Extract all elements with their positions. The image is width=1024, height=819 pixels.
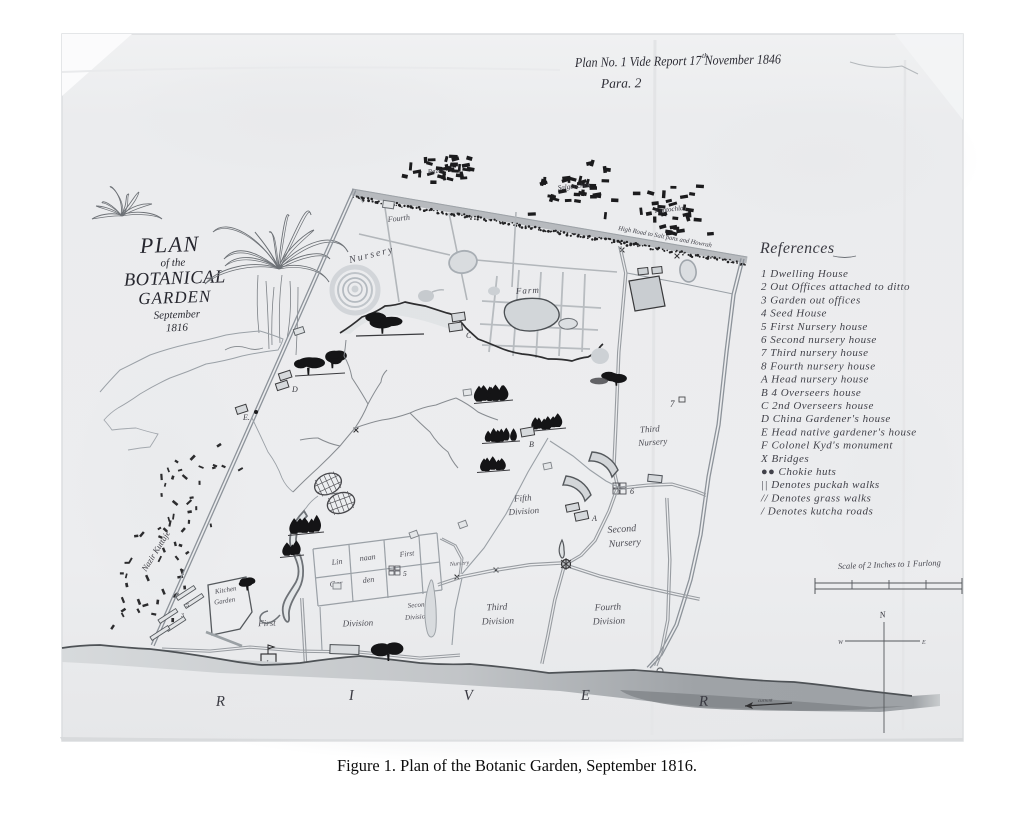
svg-text:A Head nursery house: A Head nursery house bbox=[760, 374, 869, 386]
svg-text:5: 5 bbox=[186, 603, 189, 609]
svg-text:Third: Third bbox=[640, 423, 661, 434]
svg-text:3: 3 bbox=[180, 613, 184, 619]
svg-text:Division: Division bbox=[481, 616, 515, 627]
svg-text:4 Seed House: 4 Seed House bbox=[761, 308, 827, 320]
svg-text:8 Fourth nursery house: 8 Fourth nursery house bbox=[761, 360, 876, 372]
svg-text:Farm: Farm bbox=[515, 285, 540, 296]
svg-text:2 Out Offices attached to dit: 2 Out Offices attached to ditto bbox=[761, 281, 910, 293]
svg-text:/ Denotes kutcha roads: / Denotes kutcha roads bbox=[760, 506, 873, 518]
svg-text:PLAN: PLAN bbox=[138, 231, 200, 258]
svg-text:den: den bbox=[362, 575, 375, 585]
svg-text:C 2nd Overseers house: C 2nd Overseers house bbox=[761, 400, 874, 412]
svg-text:E: E bbox=[921, 640, 926, 646]
svg-text:Fourth: Fourth bbox=[594, 603, 622, 614]
svg-text:●● Chokie huts: ●● Chokie huts bbox=[761, 466, 836, 478]
svg-text:September: September bbox=[153, 308, 201, 322]
svg-text:1816: 1816 bbox=[166, 322, 189, 335]
svg-text:Fifth: Fifth bbox=[513, 492, 533, 503]
svg-text:B 4 Overseers house: B 4 Overseers house bbox=[761, 387, 861, 399]
svg-text:Figure 1. Plan of the Botanic: Figure 1. Plan of the Botanic Garden, Se… bbox=[337, 756, 697, 775]
svg-text:E.: E. bbox=[242, 413, 250, 422]
svg-text:R: R bbox=[698, 694, 709, 710]
svg-text:3 Garden out offices: 3 Garden out offices bbox=[760, 294, 861, 306]
svg-text:X Bridges: X Bridges bbox=[760, 453, 809, 465]
svg-text:Third: Third bbox=[486, 603, 507, 614]
svg-text:C: C bbox=[466, 331, 472, 340]
svg-text:References: References bbox=[759, 240, 835, 257]
svg-text:Second: Second bbox=[607, 523, 638, 536]
svg-text:current: current bbox=[758, 698, 773, 704]
svg-text:7: 7 bbox=[670, 399, 675, 409]
svg-text:Division: Division bbox=[592, 616, 626, 627]
svg-text:R: R bbox=[215, 694, 226, 710]
svg-text:Nursery: Nursery bbox=[607, 537, 641, 550]
svg-text:of the: of the bbox=[160, 257, 185, 270]
svg-text:Nursery: Nursery bbox=[637, 436, 668, 448]
svg-text:5: 5 bbox=[403, 569, 407, 578]
svg-text:|| Denotes puckah walks: || Denotes puckah walks bbox=[761, 479, 880, 491]
svg-text:E Head native gardener's hous: E Head native gardener's house bbox=[760, 426, 917, 438]
svg-text:F Colonel Kyd's monument: F Colonel Kyd's monument bbox=[760, 440, 893, 452]
svg-text:E: E bbox=[580, 688, 591, 704]
svg-text:GARDEN: GARDEN bbox=[138, 287, 212, 309]
svg-text:1 Dwelling House: 1 Dwelling House bbox=[761, 268, 848, 280]
svg-text:Lin: Lin bbox=[330, 557, 343, 567]
svg-text:7 Third nursery house: 7 Third nursery house bbox=[761, 347, 869, 359]
svg-text:D China Gardener's house: D China Gardener's house bbox=[760, 413, 891, 425]
svg-text:A: A bbox=[591, 514, 597, 523]
svg-text:th: th bbox=[702, 51, 708, 60]
svg-text:B: B bbox=[529, 440, 534, 449]
svg-text:Para. 2: Para. 2 bbox=[600, 75, 642, 91]
svg-text:// Denotes grass walks: // Denotes grass walks bbox=[760, 492, 871, 504]
svg-text:6 Second nursery house: 6 Second nursery house bbox=[761, 334, 877, 346]
svg-text:5 First Nursery house: 5 First Nursery house bbox=[761, 321, 868, 333]
svg-text:Division: Division bbox=[341, 617, 373, 628]
svg-text:D: D bbox=[291, 385, 298, 394]
